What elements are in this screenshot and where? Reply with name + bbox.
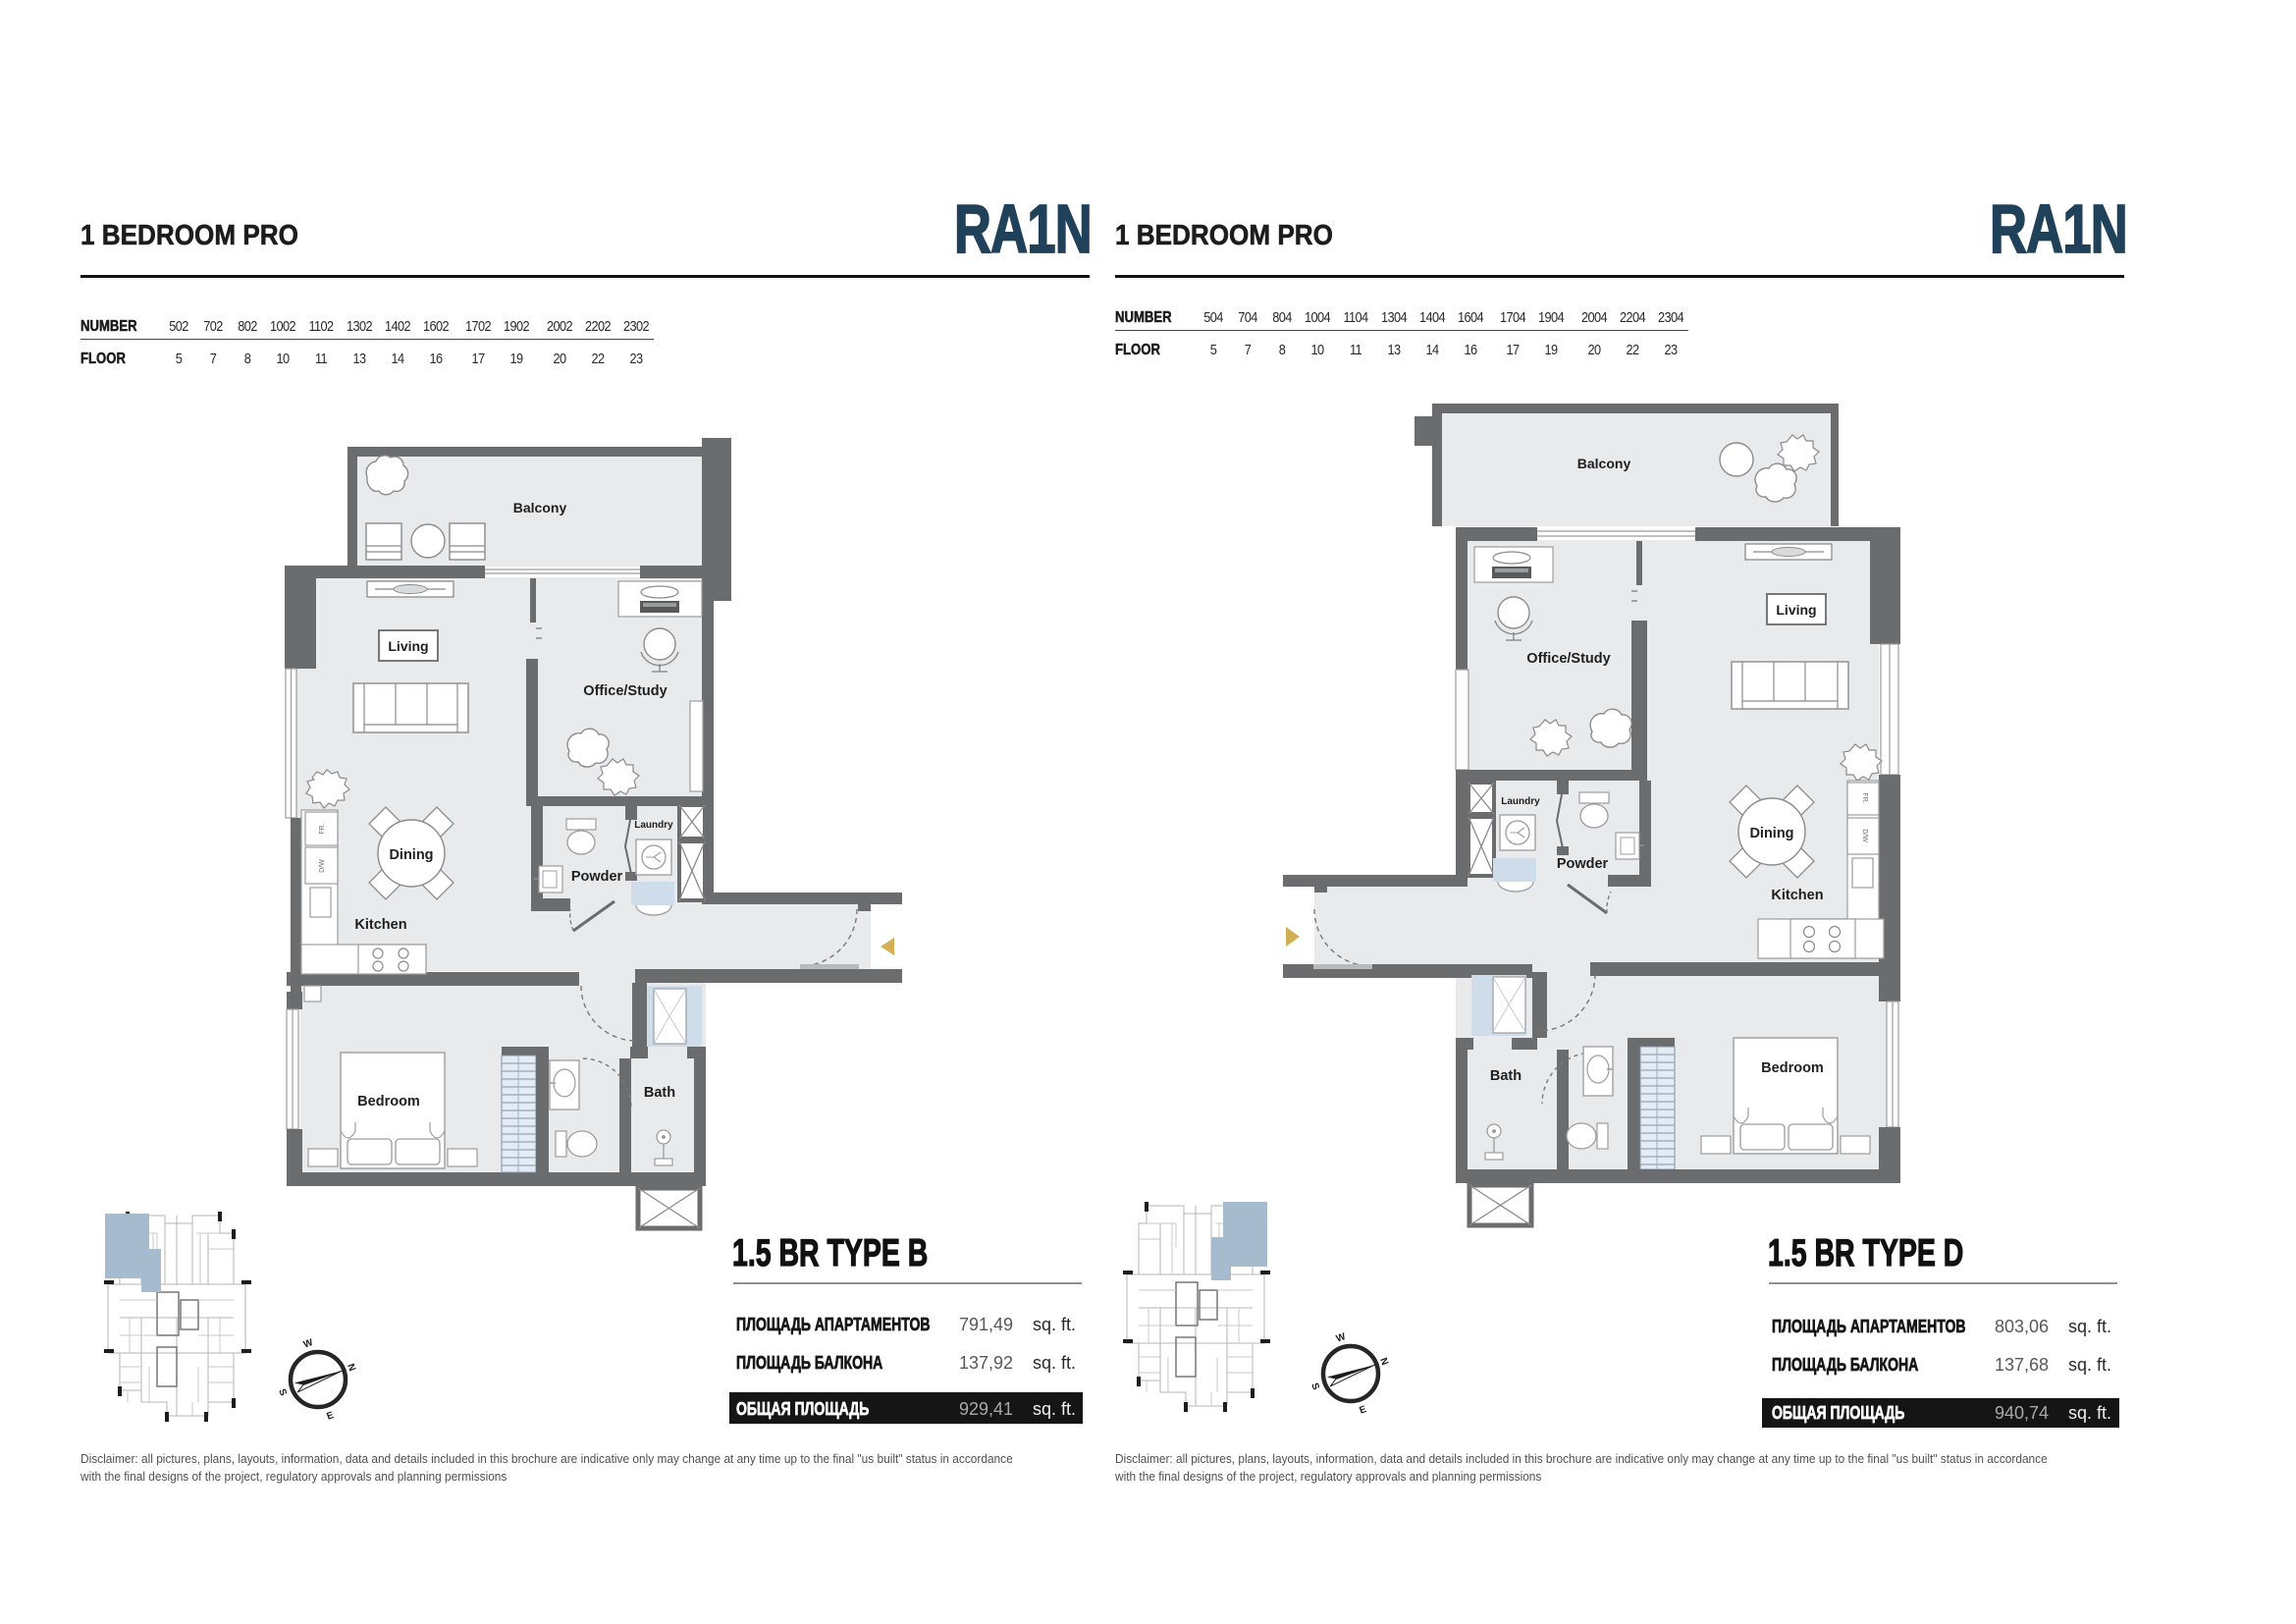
svg-text:E: E xyxy=(325,1410,335,1421)
svg-text:Bedroom: Bedroom xyxy=(357,1094,420,1110)
svg-text:FR.: FR. xyxy=(319,823,326,834)
svg-text:Dining: Dining xyxy=(389,847,433,863)
svg-text:Balcony: Balcony xyxy=(513,500,567,515)
svg-text:Powder: Powder xyxy=(1557,856,1609,872)
svg-text:Office/Study: Office/Study xyxy=(1526,651,1610,667)
svg-text:Office/Study: Office/Study xyxy=(583,683,667,699)
svg-text:N: N xyxy=(1377,1357,1390,1368)
svg-text:Laundry: Laundry xyxy=(634,820,673,831)
svg-text:S: S xyxy=(277,1387,289,1397)
svg-text:FR.: FR. xyxy=(1861,792,1868,803)
svg-text:Bedroom: Bedroom xyxy=(1761,1060,1824,1076)
svg-text:Powder: Powder xyxy=(571,869,623,885)
svg-text:Bath: Bath xyxy=(644,1085,675,1101)
svg-text:N: N xyxy=(345,1363,357,1374)
svg-text:E: E xyxy=(1358,1404,1367,1415)
svg-text:Bath: Bath xyxy=(1490,1068,1522,1084)
svg-text:D/W: D/W xyxy=(319,859,326,873)
svg-text:Living: Living xyxy=(388,638,428,654)
svg-text:Kitchen: Kitchen xyxy=(354,917,406,933)
svg-text:Dining: Dining xyxy=(1749,826,1793,841)
svg-text:Kitchen: Kitchen xyxy=(1771,888,1823,903)
svg-text:Living: Living xyxy=(1776,602,1816,618)
svg-text:W: W xyxy=(1335,1332,1348,1345)
svg-text:Balcony: Balcony xyxy=(1577,456,1631,471)
svg-text:W: W xyxy=(302,1338,315,1351)
svg-text:D/W: D/W xyxy=(1861,829,1868,842)
svg-text:S: S xyxy=(1309,1381,1321,1391)
svg-text:Laundry: Laundry xyxy=(1501,796,1540,807)
